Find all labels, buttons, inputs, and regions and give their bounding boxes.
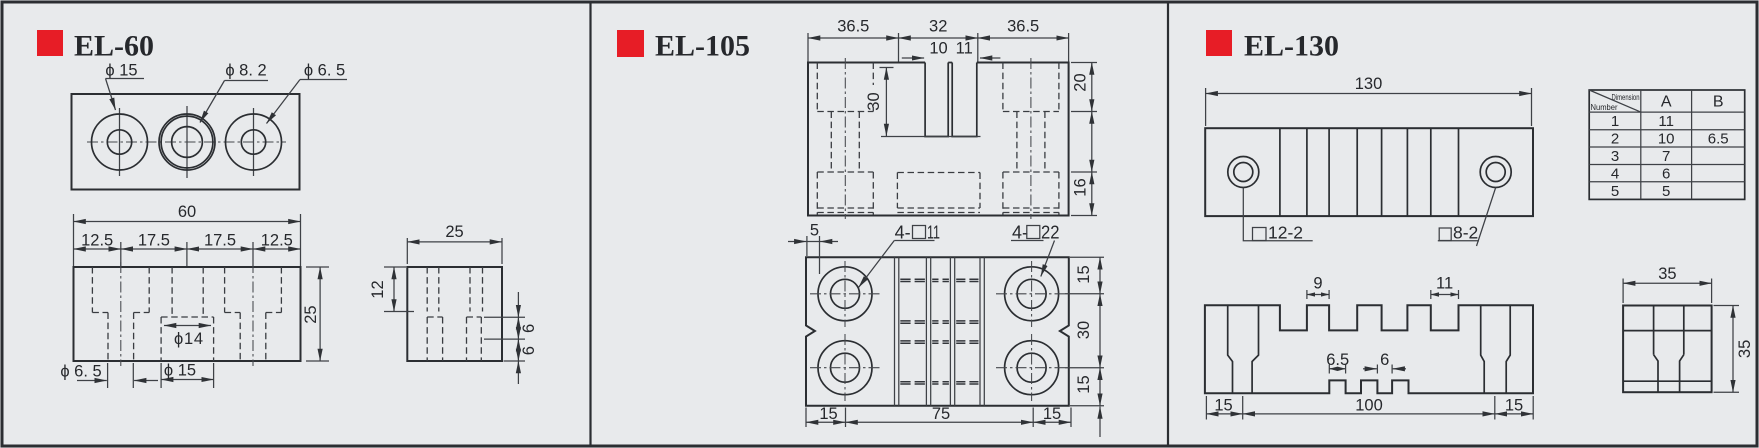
svg-text:2: 2 bbox=[1611, 131, 1619, 148]
svg-text:5: 5 bbox=[1611, 183, 1619, 200]
svg-text:4-: 4- bbox=[1012, 223, 1028, 243]
svg-text:6.5: 6.5 bbox=[1326, 351, 1349, 369]
svg-text:15: 15 bbox=[1214, 397, 1232, 415]
svg-text:15: 15 bbox=[1075, 375, 1093, 393]
svg-text:9: 9 bbox=[1313, 275, 1322, 293]
svg-text:3: 3 bbox=[1611, 148, 1619, 165]
svg-text:8-2: 8-2 bbox=[1453, 223, 1478, 243]
svg-text:Number: Number bbox=[1591, 102, 1618, 112]
svg-text:ϕ 6. 5: ϕ 6. 5 bbox=[304, 62, 345, 80]
svg-text:11: 11 bbox=[956, 40, 973, 58]
svg-text:15: 15 bbox=[819, 405, 837, 423]
svg-text:100: 100 bbox=[1355, 397, 1383, 415]
svg-text:ϕ 15: ϕ 15 bbox=[164, 362, 196, 380]
svg-text:ϕ 8. 2: ϕ 8. 2 bbox=[225, 62, 266, 80]
svg-text:Dimension: Dimension bbox=[1612, 92, 1640, 102]
svg-text:11: 11 bbox=[1436, 275, 1453, 293]
svg-text:35: 35 bbox=[1658, 265, 1676, 283]
svg-text:12.5: 12.5 bbox=[261, 232, 293, 250]
svg-text:75: 75 bbox=[932, 405, 950, 423]
svg-text:15: 15 bbox=[1043, 405, 1061, 423]
svg-text:30: 30 bbox=[1075, 321, 1093, 339]
svg-text:17.5: 17.5 bbox=[204, 232, 236, 250]
svg-text:60: 60 bbox=[178, 203, 196, 221]
svg-text:36.5: 36.5 bbox=[837, 18, 869, 36]
svg-text:4: 4 bbox=[1611, 166, 1619, 183]
svg-text:6: 6 bbox=[520, 324, 538, 333]
svg-text:7: 7 bbox=[1662, 148, 1670, 165]
svg-text:1: 1 bbox=[1611, 113, 1619, 130]
svg-text:ϕ 6. 5: ϕ 6. 5 bbox=[60, 363, 101, 381]
svg-text:6.5: 6.5 bbox=[1708, 131, 1729, 148]
svg-text:12.5: 12.5 bbox=[81, 232, 113, 250]
svg-text:10: 10 bbox=[1658, 131, 1675, 148]
svg-text:12-2: 12-2 bbox=[1268, 223, 1303, 243]
svg-text:4-: 4- bbox=[895, 223, 911, 243]
svg-text:35: 35 bbox=[1736, 340, 1754, 358]
svg-text:EL-60: EL-60 bbox=[74, 30, 154, 63]
svg-text:32: 32 bbox=[929, 18, 947, 36]
svg-text:11: 11 bbox=[927, 223, 940, 243]
svg-text:20: 20 bbox=[1072, 73, 1090, 91]
svg-text:B: B bbox=[1713, 94, 1724, 111]
svg-text:EL-105: EL-105 bbox=[655, 30, 750, 63]
svg-text:11: 11 bbox=[1658, 113, 1674, 130]
svg-text:16: 16 bbox=[1072, 178, 1090, 196]
svg-text:15: 15 bbox=[1505, 397, 1523, 415]
svg-text:15: 15 bbox=[1075, 265, 1093, 283]
svg-text:17.5: 17.5 bbox=[138, 232, 170, 250]
svg-text:5: 5 bbox=[810, 222, 819, 240]
svg-text:5: 5 bbox=[1662, 183, 1670, 200]
svg-text:6: 6 bbox=[520, 346, 538, 355]
svg-text:ϕ 15: ϕ 15 bbox=[105, 62, 137, 80]
svg-text:130: 130 bbox=[1355, 75, 1383, 93]
svg-text:6: 6 bbox=[1662, 166, 1670, 183]
svg-text:6: 6 bbox=[1380, 351, 1389, 369]
svg-text:25: 25 bbox=[302, 305, 320, 323]
svg-text:25: 25 bbox=[445, 223, 463, 241]
svg-text:36.5: 36.5 bbox=[1007, 18, 1039, 36]
svg-text:EL-130: EL-130 bbox=[1244, 30, 1339, 63]
svg-text:10: 10 bbox=[929, 40, 947, 58]
svg-text:30: 30 bbox=[865, 92, 883, 110]
svg-text:12: 12 bbox=[369, 280, 387, 298]
svg-text:ϕ14: ϕ14 bbox=[174, 330, 203, 348]
svg-text:22: 22 bbox=[1041, 223, 1060, 243]
svg-text:A: A bbox=[1661, 94, 1672, 111]
